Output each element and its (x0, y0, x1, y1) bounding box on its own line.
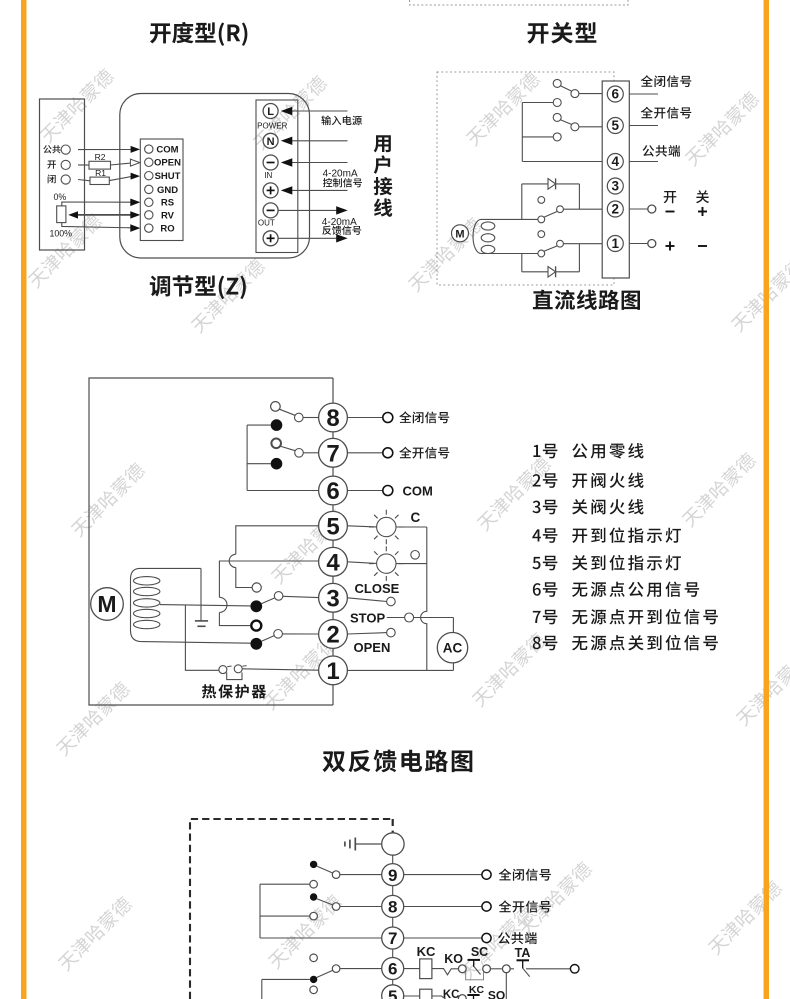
svg-text:6: 6 (388, 960, 397, 979)
svg-text:CLOSE: CLOSE (355, 581, 400, 596)
svg-text:R1: R1 (95, 168, 106, 178)
svg-text:COM: COM (156, 145, 178, 156)
svg-text:4-20mA: 4-20mA (323, 169, 358, 180)
svg-text:OUT: OUT (258, 218, 275, 227)
svg-text:IN: IN (264, 171, 272, 180)
svg-text:RS: RS (161, 198, 174, 209)
svg-text:5: 5 (326, 513, 339, 540)
svg-text:OPEN: OPEN (354, 640, 391, 655)
svg-text:RV: RV (161, 210, 175, 221)
svg-text:3: 3 (612, 179, 620, 194)
svg-text:OPEN: OPEN (154, 158, 181, 169)
svg-text:5: 5 (388, 987, 397, 999)
svg-text:N: N (267, 136, 275, 148)
svg-text:SO: SO (488, 989, 505, 999)
svg-text:C: C (411, 510, 421, 525)
svg-text:6: 6 (326, 478, 339, 505)
svg-text:M: M (97, 591, 116, 617)
svg-text:6: 6 (612, 87, 620, 102)
svg-text:GND: GND (157, 185, 178, 196)
svg-text:RO: RO (160, 224, 174, 235)
svg-text:1: 1 (326, 658, 339, 685)
svg-text:5: 5 (612, 118, 620, 133)
svg-text:STOP: STOP (350, 611, 385, 626)
svg-text:TA: TA (515, 946, 531, 960)
svg-text:0%: 0% (54, 192, 67, 202)
svg-text:100%: 100% (50, 229, 73, 239)
svg-text:3: 3 (326, 585, 339, 612)
svg-text:SC: SC (471, 945, 488, 959)
svg-text:AC: AC (443, 641, 463, 656)
svg-text:2: 2 (612, 202, 620, 217)
svg-text:7: 7 (388, 929, 397, 948)
svg-text:KO: KO (444, 952, 463, 966)
svg-text:COM: COM (403, 483, 433, 498)
svg-text:KC: KC (417, 944, 436, 959)
svg-text:9: 9 (388, 866, 397, 885)
svg-text:R2: R2 (95, 152, 106, 162)
svg-text:1: 1 (612, 236, 620, 251)
svg-text:8: 8 (326, 405, 339, 432)
svg-text:SHUT: SHUT (155, 171, 181, 182)
svg-text:8: 8 (388, 898, 397, 917)
svg-text:2: 2 (326, 622, 339, 649)
svg-text:POWER: POWER (257, 122, 287, 131)
svg-text:L: L (267, 106, 274, 118)
svg-text:7: 7 (326, 440, 339, 467)
svg-text:KC: KC (443, 989, 460, 999)
svg-text:M: M (455, 228, 464, 240)
svg-text:4: 4 (326, 549, 340, 576)
svg-text:4: 4 (612, 154, 620, 169)
